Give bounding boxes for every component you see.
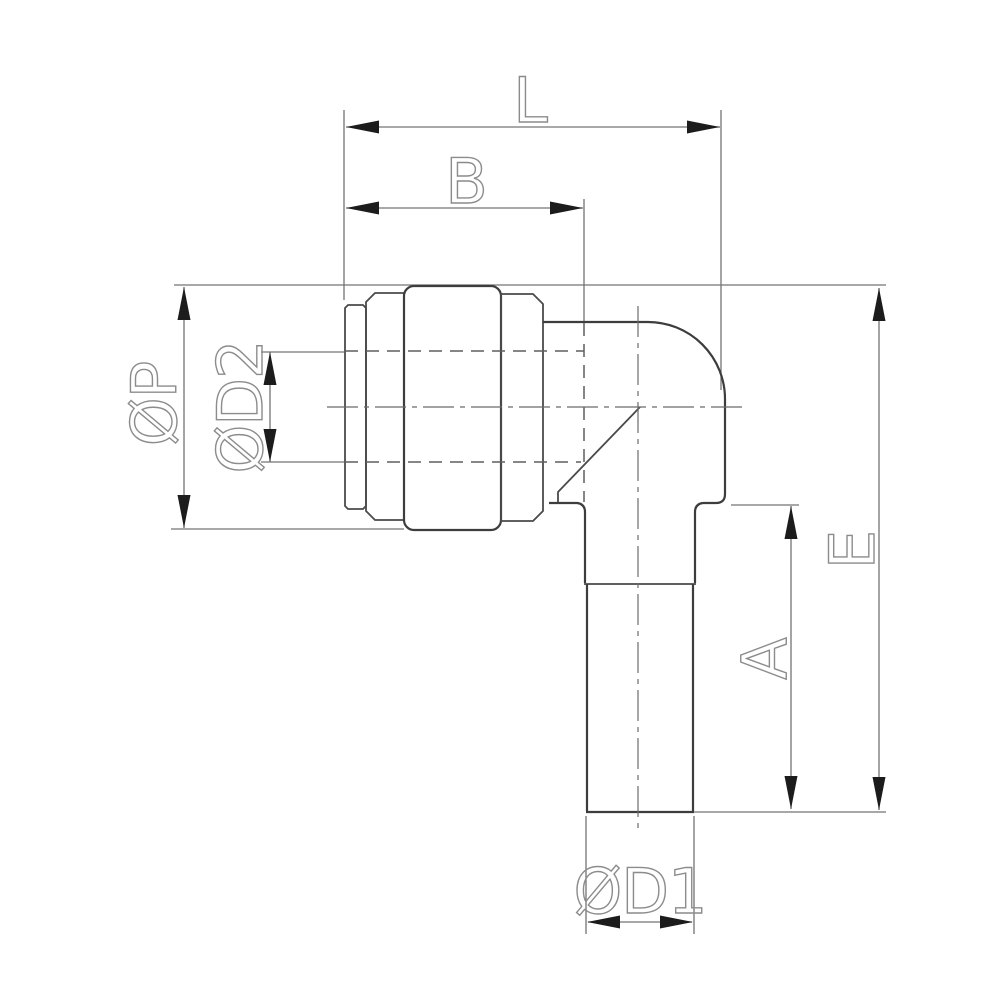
arrow-up-icon: [873, 288, 886, 321]
arrow-down-icon: [873, 777, 886, 810]
arrow-down-icon: [178, 495, 191, 528]
arrow-right-icon: [687, 121, 720, 134]
extension-lines: [171, 110, 886, 934]
drawing-canvas: L B ØP ØD2 A E ØD1: [0, 0, 1000, 1000]
arrow-down-icon: [785, 776, 798, 809]
label-E: E: [816, 531, 889, 569]
cap-ring: [404, 286, 501, 530]
centerlines: [327, 306, 743, 828]
label-L: L: [513, 64, 548, 137]
arrow-up-icon: [178, 287, 191, 320]
arrow-right-icon: [550, 202, 583, 215]
neck-right: [695, 503, 703, 583]
label-P: ØP: [118, 362, 191, 446]
hidden-lines: [345, 323, 584, 502]
arrow-up-icon: [785, 506, 798, 539]
dimension-labels: L B ØP ØD2 A E ØD1: [118, 64, 889, 928]
arrow-left-icon: [346, 121, 379, 134]
stem: [587, 584, 693, 811]
elbow-fitting-drawing: L B ØP ØD2 A E ØD1: [0, 0, 1000, 1000]
label-A: A: [728, 638, 801, 680]
arrow-left-icon: [346, 202, 379, 215]
fitting-outline: [345, 286, 725, 812]
label-B: B: [445, 145, 487, 218]
label-D1: ØD1: [574, 855, 707, 928]
neck-left: [549, 503, 585, 583]
label-D2: ØD2: [204, 341, 277, 474]
bore-diagonal: [558, 407, 640, 503]
